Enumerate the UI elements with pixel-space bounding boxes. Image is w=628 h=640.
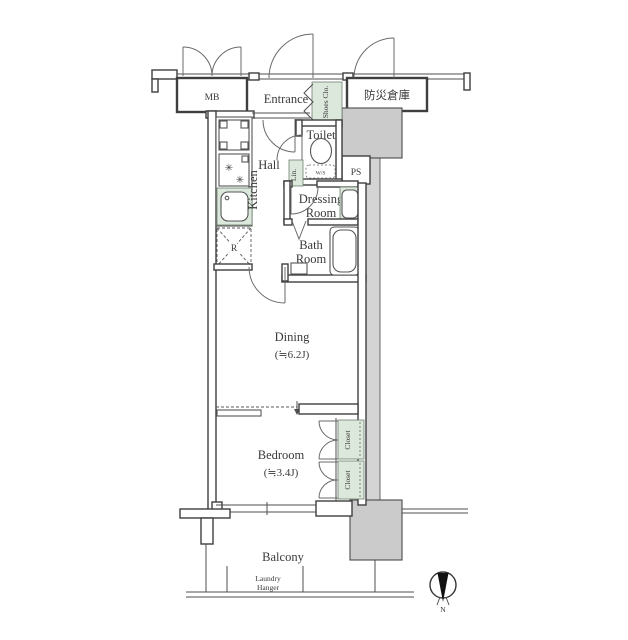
toilet-room: Toilet W/S Lin. [277,120,342,186]
balcony-wall-stub-v [201,518,213,544]
refrigerator-label: R [231,244,238,254]
hall: Hall [258,158,280,172]
disaster-storage-door-swing [354,38,394,78]
dressing-room-label-2: Room [306,206,337,220]
bath-wall-top-left [284,219,292,225]
laundry-hanger-label-2: Hanger [257,583,280,592]
laundry-hanger-label-1: Laundry [255,574,281,583]
stove-knob [242,156,248,162]
bath-counter [291,263,307,274]
partition [216,401,358,416]
entrance-door-swing [269,34,313,78]
kitchen-sink-basin [221,192,248,221]
floor-plan-page: MB 防災倉庫 PS Entrance Shoes Clo. [0,0,628,640]
dining-label: Dining [275,330,310,344]
toilet-wall-top [296,120,342,126]
disaster-storage-label: 防災倉庫 [364,88,410,102]
toilet-wall-right [336,120,342,184]
bath-wall-top-right [308,219,358,225]
meter-box-label: MB [205,93,220,103]
dressing-wall-top-right [317,181,358,187]
kitchen-area: ✳ ✳ Kitchen R R [208,111,260,512]
dining-wall-top-left [214,264,252,270]
partition-wall [299,404,358,414]
column-bottom [350,500,402,560]
linen-label: Lin. [289,169,298,181]
dining-size-label: (≒6.2J) [275,349,310,361]
hall-label: Hall [258,158,280,172]
closet-upper-label: Closet [343,430,352,450]
column-top [342,108,402,158]
wall-cap-right-stub [464,73,470,90]
shaft-band [366,156,380,502]
toilet-bowl [311,139,332,164]
dressing-room-label-1: Dressing [299,192,344,206]
wm-pad-tr [241,121,248,128]
door-frame-block-left [249,73,259,80]
entrance-label: Entrance [264,92,309,106]
balcony-wall-stub-h [180,509,230,518]
shoes-closet-label: Shoes Clo. [321,86,330,119]
toilet-washlet-label: W/S [316,171,326,177]
mb-door-left-swing [183,47,212,76]
north-label: N [440,605,446,614]
bath-folding-door [292,221,306,239]
dressing-wall-left [284,181,290,223]
stove-burner-icon: ✳ [225,163,233,174]
wall-cap-left-stub [152,79,158,92]
dining-door-swing [249,267,285,303]
mb-door-right-swing [212,47,241,76]
dressing-room: Dressing Room [284,181,360,223]
toilet-door-swing [277,135,302,160]
wm-pad-br [241,142,248,149]
bath-room: Bath Room [282,219,366,282]
balcony-label: Balcony [262,550,304,564]
toilet-wall-left-upper [296,120,302,136]
wm-pad-bl [220,142,227,149]
bath-room-label-1: Bath [299,238,323,252]
meter-box: MB [177,47,247,112]
pipe-space-label: PS [351,168,362,178]
needle-feather-right [446,597,449,605]
needle-feather-left [437,597,440,605]
compass: N [430,572,456,614]
wall-cap-left [152,70,177,79]
bedroom: Bedroom (≒3.4J) Closet Closet [212,418,364,516]
bedroom-wall-bottom-right [316,501,352,516]
kitchen-label: Kitchen [246,169,260,209]
closet-door-swing-4 [319,480,338,498]
exterior-wall-left [208,111,216,512]
closet-door-swing-3 [319,462,338,480]
stove-burner-icon: ✳ [236,175,244,186]
sliding-door-panel [217,410,261,416]
bedroom-label: Bedroom [258,448,305,462]
floor-plan-drawing: MB 防災倉庫 PS Entrance Shoes Clo. [0,0,628,640]
closet-lower-label: Closet [343,470,352,490]
bedroom-size-label: (≒3.4J) [264,467,299,479]
closet-door-swing-1 [319,421,338,440]
hall-door-swing [263,120,295,152]
closet-door-swing-2 [319,440,338,459]
bath-wall-bottom [282,275,366,282]
wm-pad-tl [220,121,227,128]
vanity-basin [342,190,358,218]
